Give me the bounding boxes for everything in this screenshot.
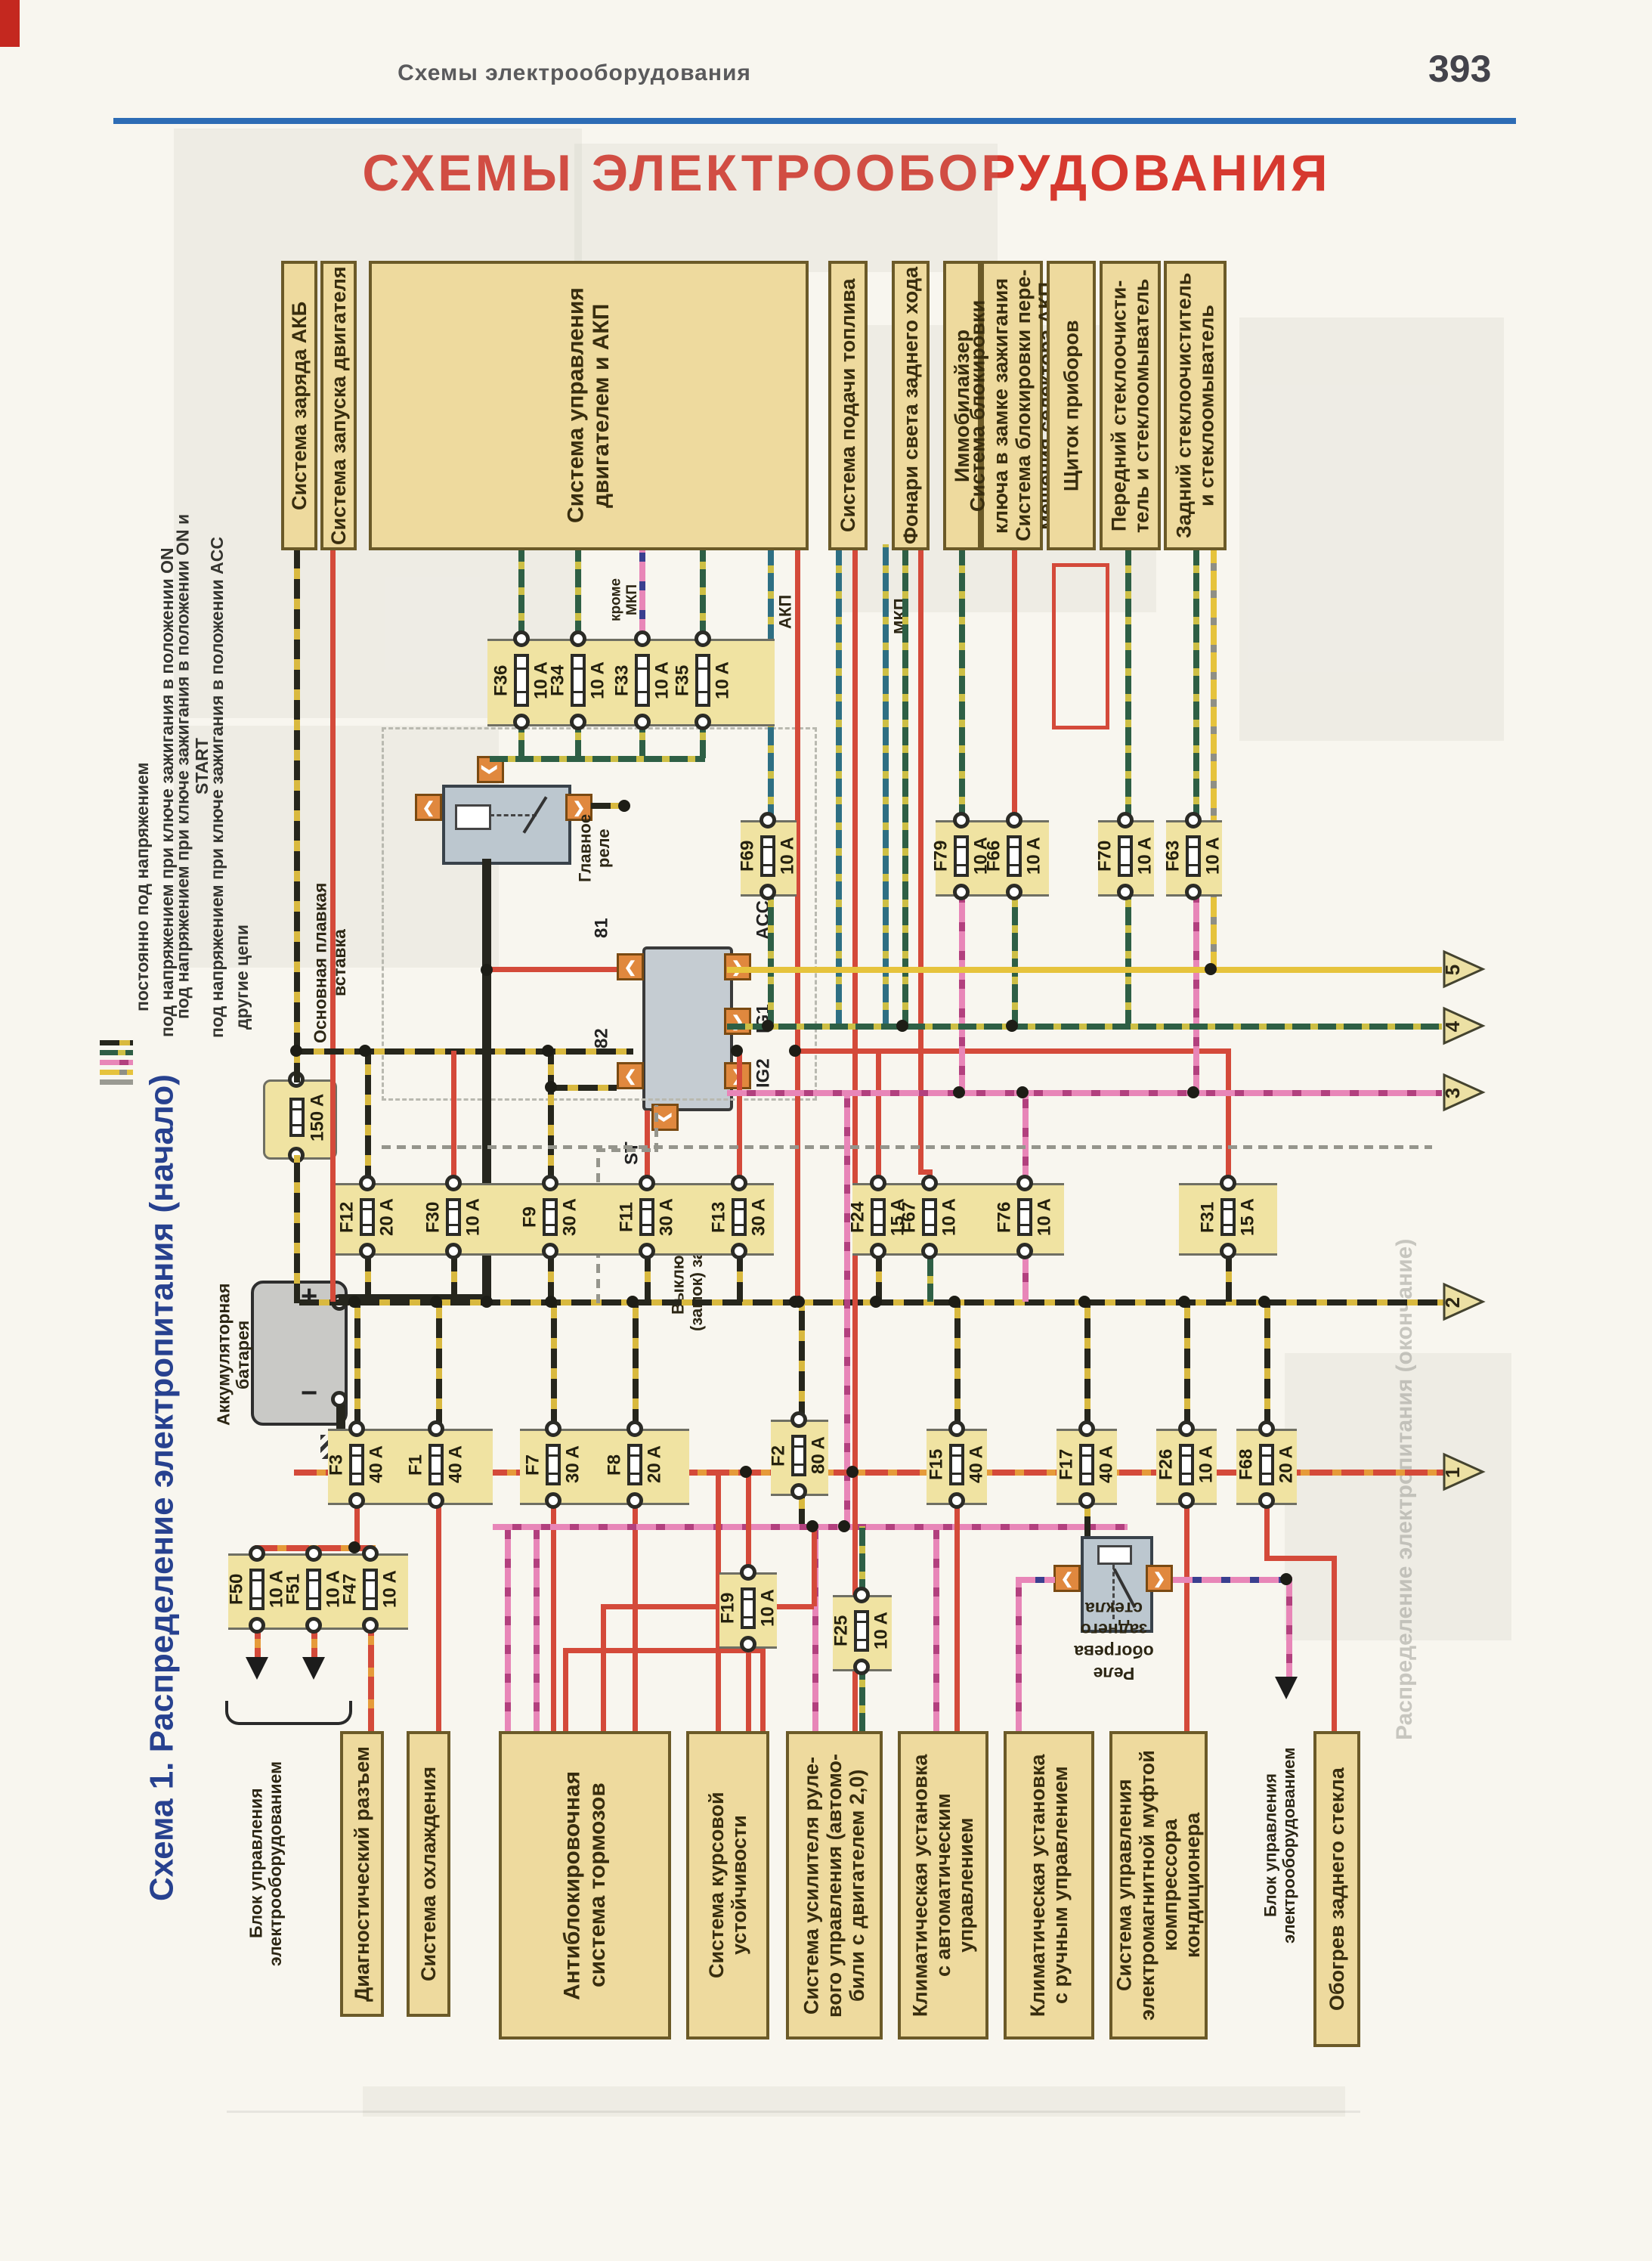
fuse-rating-F68: 20 A bbox=[1276, 1432, 1298, 1498]
wire bbox=[1184, 1302, 1190, 1429]
wire bbox=[859, 1667, 865, 1731]
fuse-id-F26: F26 bbox=[1156, 1432, 1177, 1498]
wire bbox=[1264, 1302, 1270, 1429]
wire bbox=[799, 1302, 805, 1421]
fuse-F7 bbox=[546, 1444, 561, 1485]
fuse-terminal bbox=[1178, 1492, 1195, 1509]
wire bbox=[548, 1051, 554, 1185]
wire bbox=[1173, 1577, 1288, 1583]
wire bbox=[1012, 892, 1018, 1028]
junction-dot bbox=[1178, 1296, 1190, 1308]
wire bbox=[368, 1625, 374, 1731]
fuse-terminal bbox=[1220, 1243, 1236, 1259]
fuse-F66 bbox=[1007, 835, 1022, 877]
junction-dot bbox=[846, 1466, 858, 1478]
fuse-F63 bbox=[1186, 835, 1201, 877]
fuse-F76 bbox=[1017, 1198, 1032, 1236]
fuse-F15 bbox=[949, 1444, 964, 1485]
fuse-F26 bbox=[1179, 1444, 1194, 1485]
fuse-rating-F33: 10 A bbox=[651, 642, 674, 719]
wire bbox=[933, 1526, 939, 1731]
legend-item-1: постоянно под напряжением bbox=[131, 724, 154, 1049]
wire bbox=[551, 1302, 557, 1429]
fuse-terminal bbox=[740, 1636, 756, 1652]
fuse-F25 bbox=[854, 1610, 869, 1652]
fuse-rating-F8: 20 A bbox=[644, 1432, 667, 1498]
fuse-terminal bbox=[1078, 1420, 1095, 1437]
junction-dot bbox=[430, 1296, 442, 1308]
fuse-id-F76: F76 bbox=[995, 1186, 1016, 1248]
fuse-id-F24: F24 bbox=[848, 1186, 869, 1248]
fuse-id-F63: F63 bbox=[1163, 823, 1184, 889]
fuse-rating-F7: 30 A bbox=[562, 1432, 585, 1498]
fuse-terminal bbox=[790, 1483, 807, 1500]
wire bbox=[601, 1604, 814, 1609]
junction-dot bbox=[1258, 1296, 1270, 1308]
fuse-F31 bbox=[1220, 1198, 1236, 1236]
fuse-terminal bbox=[1185, 812, 1202, 829]
fuse-terminal bbox=[731, 1243, 747, 1259]
wire bbox=[294, 544, 300, 1082]
fuse-id-F15: F15 bbox=[927, 1432, 948, 1498]
ignition-terminal-label-st: ST bbox=[621, 1135, 644, 1172]
fuse-id-F1: F1 bbox=[406, 1432, 427, 1498]
ignition-label: Выключатель (замок) зажигания bbox=[659, 1143, 716, 1370]
fuse-id-F68: F68 bbox=[1236, 1432, 1258, 1498]
fuse-terminal bbox=[759, 812, 776, 829]
fuse-id-F70: F70 bbox=[1095, 823, 1116, 889]
fuse-F17 bbox=[1079, 1444, 1094, 1485]
akp-label: АКП bbox=[775, 584, 797, 640]
wire bbox=[795, 544, 800, 1302]
fuse-F50 bbox=[249, 1569, 265, 1610]
fuse-rating-F67: 10 A bbox=[939, 1186, 961, 1248]
defogger-relay-terminal-right: ❯ bbox=[1146, 1565, 1173, 1592]
bottom-box-9: Обогрев заднего стекла bbox=[1313, 1731, 1360, 2047]
battery-minus: − bbox=[301, 1377, 317, 1410]
fuse-terminal bbox=[731, 1175, 747, 1191]
bleed-patch bbox=[574, 144, 998, 272]
wire bbox=[876, 1051, 881, 1185]
junction-dot bbox=[1006, 1020, 1018, 1032]
wire bbox=[436, 1302, 442, 1429]
fuse-id-F30: F30 bbox=[423, 1186, 444, 1248]
fuse-terminal bbox=[1016, 1175, 1033, 1191]
fuse-F11 bbox=[639, 1198, 654, 1236]
wire bbox=[768, 892, 774, 1028]
fuse-terminal bbox=[634, 630, 651, 647]
fuse-150A bbox=[289, 1098, 305, 1137]
fuse-terminal bbox=[695, 714, 711, 730]
fuse-F69 bbox=[760, 835, 775, 877]
ecu-label-left: Блок управления электрооборудованием bbox=[242, 1739, 290, 1988]
fuse-F19 bbox=[741, 1587, 756, 1629]
wire bbox=[563, 1648, 568, 1731]
fuse-F13 bbox=[732, 1198, 747, 1236]
bottom-box-1: Диагностический разъем bbox=[340, 1731, 384, 2017]
fuse-id-F67: F67 bbox=[899, 1186, 920, 1248]
junction-dot bbox=[870, 1296, 882, 1308]
wire bbox=[959, 544, 965, 822]
wire bbox=[490, 756, 705, 762]
fuse-rating-F31: 15 A bbox=[1237, 1186, 1260, 1248]
fuse-terminal bbox=[428, 1492, 444, 1509]
wire bbox=[365, 1051, 371, 1185]
wire bbox=[1084, 1302, 1091, 1429]
fuse-rating-F63: 10 A bbox=[1202, 823, 1225, 889]
defogger-relay-label: Реле обогрева заднего стекла bbox=[1055, 1634, 1173, 1684]
junction-dot bbox=[1078, 1296, 1091, 1308]
legend-item-4: под напряжением при ключе зажигания в по… bbox=[206, 526, 229, 1049]
junction-dot bbox=[290, 1045, 302, 1057]
bottom-box-8: Система управления электромагнитной муфт… bbox=[1109, 1731, 1208, 2040]
fuse-F1 bbox=[428, 1444, 444, 1485]
top-box-10: Задний стеклоочиститель и стеклоомывател… bbox=[1164, 261, 1227, 550]
junction-dot bbox=[359, 1045, 371, 1057]
wire bbox=[1264, 1556, 1337, 1561]
legend-swatch-4 bbox=[100, 1070, 133, 1075]
fuse-F51 bbox=[306, 1569, 321, 1610]
fuse-id-F17: F17 bbox=[1056, 1432, 1078, 1498]
junction-dot bbox=[1280, 1573, 1292, 1585]
wire bbox=[601, 1604, 606, 1731]
wire bbox=[1016, 1581, 1022, 1731]
wire bbox=[1012, 544, 1017, 822]
scheme-title: Схема 1. Распределение электропитания (н… bbox=[139, 1064, 184, 1911]
wire bbox=[505, 1526, 511, 1731]
junction-dot bbox=[1016, 1086, 1029, 1098]
wire bbox=[1226, 1051, 1231, 1185]
bottom-box-2: Система охлаждения bbox=[407, 1731, 450, 2017]
junction-dot bbox=[618, 800, 630, 812]
fuse-terminal bbox=[695, 630, 711, 647]
wire bbox=[518, 544, 524, 639]
wire bbox=[534, 1526, 540, 1731]
legend-item-5: другие цепи bbox=[231, 906, 254, 1049]
wire bbox=[1286, 1577, 1292, 1683]
bleed-watermark: Распределение электропитания (окончание) bbox=[1387, 960, 1422, 2018]
wiring-diagram: Схема 1. Распределение электропитания (н… bbox=[0, 0, 1652, 2261]
fuse-F30 bbox=[446, 1198, 461, 1236]
wire bbox=[1211, 544, 1217, 971]
fuse-terminal bbox=[542, 1243, 558, 1259]
connector-triangle-5: 5 bbox=[1442, 949, 1486, 993]
fuse-F35 bbox=[695, 654, 710, 707]
junction-dot bbox=[793, 1296, 805, 1308]
fuse-rating-F76: 10 A bbox=[1034, 1186, 1056, 1248]
wire bbox=[852, 544, 858, 1474]
fuse-terminal bbox=[1078, 1492, 1095, 1509]
top-box-4: Система подачи топлива bbox=[828, 261, 868, 550]
harness-outline bbox=[382, 727, 817, 1101]
svg-text:5: 5 bbox=[1442, 965, 1464, 975]
junction-dot bbox=[481, 964, 493, 976]
fuse-terminal bbox=[790, 1411, 807, 1428]
wire bbox=[575, 544, 581, 639]
bottom-box-5: Система усилителя руле- вого управления … bbox=[786, 1731, 883, 2040]
wire bbox=[563, 1648, 766, 1653]
connector-triangle-1: 1 bbox=[1442, 1452, 1486, 1495]
arrow-down-icon bbox=[246, 1657, 268, 1680]
wire bbox=[959, 892, 965, 1095]
fuse-terminal bbox=[1178, 1420, 1195, 1437]
junction-dot bbox=[481, 1296, 493, 1308]
wire bbox=[633, 1501, 638, 1731]
fuse-terminal bbox=[853, 1587, 870, 1603]
fuse-terminal bbox=[445, 1175, 462, 1191]
fuse-terminal bbox=[626, 1492, 643, 1509]
top-box-7: Система блокировки ключа в замке зажиган… bbox=[981, 261, 1043, 550]
defogger-relay-terminal-left: ❮ bbox=[1053, 1565, 1081, 1592]
fuse-F79 bbox=[954, 835, 969, 877]
fuse-id-F69: F69 bbox=[738, 823, 759, 889]
wire bbox=[484, 967, 617, 972]
wire bbox=[1125, 892, 1131, 1028]
fuse-terminal bbox=[1016, 1243, 1033, 1259]
wire bbox=[1022, 1092, 1029, 1185]
junction-dot bbox=[545, 1081, 557, 1093]
fuse-terminal bbox=[921, 1175, 938, 1191]
arrow-down-icon bbox=[1275, 1677, 1298, 1699]
junction-dot bbox=[542, 1045, 554, 1057]
fuse-rating-F9: 30 A bbox=[559, 1186, 582, 1248]
fuse-id-F2: F2 bbox=[769, 1423, 790, 1488]
fuse-rating-F1: 40 A bbox=[445, 1432, 468, 1498]
ecu-label-right: Блок управления электрооборудованием bbox=[1256, 1721, 1304, 1970]
fuse-terminal bbox=[305, 1545, 322, 1562]
fuse-id-F66: F66 bbox=[984, 823, 1005, 889]
junction-dot bbox=[896, 1020, 908, 1032]
fuse-id-F35: F35 bbox=[673, 642, 694, 719]
fuse-terminal bbox=[348, 1420, 365, 1437]
connector-triangle-4: 4 bbox=[1442, 1006, 1486, 1049]
fuse-terminal bbox=[1185, 884, 1202, 900]
fuse-id-F9: F9 bbox=[520, 1186, 541, 1248]
junction-dot bbox=[545, 1296, 557, 1308]
fuse-terminal bbox=[948, 1420, 965, 1437]
fuse-id-F33: F33 bbox=[612, 642, 633, 719]
fuse-F24 bbox=[871, 1198, 886, 1236]
fuse-rating-F3: 40 A bbox=[366, 1432, 388, 1498]
top-box-3: Система управления двигателем и АКП bbox=[369, 261, 809, 550]
svg-text:3: 3 bbox=[1442, 1088, 1464, 1098]
wire bbox=[1264, 1501, 1270, 1561]
fuse-terminal bbox=[639, 1243, 655, 1259]
wire bbox=[354, 1302, 360, 1429]
bottom-box-7: Климатическая установка с ручным управле… bbox=[1004, 1731, 1094, 2040]
wire bbox=[727, 1090, 1442, 1096]
connector-triangle-2: 2 bbox=[1442, 1282, 1486, 1325]
wire bbox=[1332, 1556, 1337, 1731]
fuse-terminal bbox=[359, 1243, 376, 1259]
fuse-terminal bbox=[740, 1564, 756, 1581]
fuse-F34 bbox=[571, 654, 586, 707]
fuse-terminal bbox=[634, 714, 651, 730]
junction-dot bbox=[348, 1541, 360, 1553]
fuse-id-F50: F50 bbox=[227, 1556, 248, 1622]
wire bbox=[727, 967, 1442, 973]
fuse-rating-F30: 10 A bbox=[462, 1186, 485, 1248]
top-box-8: Щиток приборов bbox=[1047, 261, 1096, 550]
wire bbox=[760, 1648, 766, 1731]
wire bbox=[1125, 544, 1131, 822]
legend-swatch-5 bbox=[100, 1079, 133, 1085]
fuse-F47 bbox=[363, 1569, 378, 1610]
fuse-terminal bbox=[428, 1420, 444, 1437]
wire bbox=[836, 544, 842, 1028]
fuse-rating-F19: 10 A bbox=[757, 1575, 780, 1641]
fuse-terminal bbox=[359, 1175, 376, 1191]
fuse-F36 bbox=[514, 654, 529, 707]
junction-dot bbox=[948, 1296, 961, 1308]
fuse-id-F12: F12 bbox=[337, 1186, 358, 1248]
junction-dot bbox=[1187, 1086, 1199, 1098]
fuse-rating-F70: 10 A bbox=[1134, 823, 1157, 889]
fuse-id-F3: F3 bbox=[326, 1432, 348, 1498]
wire bbox=[294, 1155, 300, 1303]
fuse-terminal bbox=[445, 1243, 462, 1259]
wire bbox=[551, 1501, 556, 1731]
fuse-terminal bbox=[545, 1420, 561, 1437]
fuse-terminal bbox=[1117, 812, 1134, 829]
fuse-id-F31: F31 bbox=[1198, 1186, 1219, 1248]
manual-page: Схемы электрооборудования 393 СХЕМЫ ЭЛЕК… bbox=[0, 0, 1652, 2261]
fuse-F12 bbox=[360, 1198, 375, 1236]
krome-mkp-label: кроме МКП bbox=[614, 561, 635, 638]
battery-label: Аккумуляторная батарея bbox=[212, 1264, 255, 1445]
wire bbox=[746, 1472, 751, 1575]
wire bbox=[954, 1302, 961, 1429]
wire bbox=[1193, 892, 1199, 1095]
fuse-terminal bbox=[1258, 1420, 1275, 1437]
fuse-terminal bbox=[545, 1492, 561, 1509]
fuse-terminal bbox=[362, 1545, 379, 1562]
fuse-F2 bbox=[791, 1435, 806, 1476]
fuse-rating-F34: 10 A bbox=[587, 642, 610, 719]
junction-dot bbox=[806, 1520, 818, 1532]
fuse-rating-F11: 30 A bbox=[656, 1186, 679, 1248]
wire bbox=[451, 1051, 456, 1185]
fuse-F68 bbox=[1259, 1444, 1274, 1485]
svg-text:1: 1 bbox=[1442, 1467, 1464, 1478]
fuse-terminal bbox=[626, 1420, 643, 1437]
fuse-F8 bbox=[627, 1444, 642, 1485]
junction-dot bbox=[953, 1086, 965, 1098]
fuse-F9 bbox=[543, 1198, 558, 1236]
wire bbox=[633, 1302, 639, 1429]
fuse-terminal bbox=[542, 1175, 558, 1191]
wire bbox=[954, 1501, 960, 1731]
fuse-id-F79: F79 bbox=[931, 823, 952, 889]
fuse-terminal bbox=[1006, 812, 1022, 829]
fuse-terminal bbox=[249, 1545, 265, 1562]
bottom-box-6: Климатическая установка с автоматическим… bbox=[898, 1731, 988, 2040]
fuse-rating-F66: 10 A bbox=[1023, 823, 1046, 889]
junction-dot bbox=[626, 1296, 639, 1308]
fuse-id-F25: F25 bbox=[831, 1598, 852, 1664]
wire bbox=[918, 544, 923, 1172]
fuse-rating-F47: 10 A bbox=[379, 1556, 402, 1622]
wire bbox=[436, 1501, 441, 1731]
arrow-down-icon bbox=[302, 1657, 325, 1680]
junction-dot bbox=[789, 1045, 801, 1057]
legend-swatch-1 bbox=[100, 1040, 133, 1045]
fuse-terminal bbox=[870, 1243, 886, 1259]
fuse-terminal bbox=[1220, 1175, 1236, 1191]
fuse-F3 bbox=[349, 1444, 364, 1485]
junction-dot bbox=[1205, 963, 1217, 975]
wire bbox=[727, 1024, 1442, 1030]
fuse-rating-F17: 40 A bbox=[1096, 1432, 1118, 1498]
wire bbox=[746, 1644, 751, 1731]
junction-dot bbox=[348, 1296, 360, 1308]
fuse-id-F36: F36 bbox=[491, 642, 512, 719]
fuse-id-F13: F13 bbox=[709, 1186, 730, 1248]
fuse-rating-F15: 40 A bbox=[966, 1432, 988, 1498]
fuse-F33 bbox=[635, 654, 650, 707]
fuse-terminal bbox=[759, 884, 776, 900]
bleed-patch bbox=[1239, 317, 1504, 741]
fuse-F67 bbox=[922, 1198, 937, 1236]
wire bbox=[382, 1145, 1432, 1149]
legend-swatch-2 bbox=[100, 1050, 133, 1055]
fuse-id-F11: F11 bbox=[617, 1186, 638, 1248]
instrument-red-outline bbox=[1052, 563, 1109, 729]
fuse-terminal bbox=[1006, 884, 1022, 900]
fuse-terminal bbox=[249, 1617, 265, 1634]
fuse-terminal bbox=[348, 1492, 365, 1509]
legend-item-3: под напряжением при ключе зажигания в по… bbox=[181, 484, 204, 1049]
wire bbox=[902, 544, 908, 1028]
junction-dot bbox=[762, 1020, 774, 1032]
fuse-terminal bbox=[948, 1492, 965, 1509]
bleed-line bbox=[227, 2111, 1360, 2113]
legend-swatch-3 bbox=[100, 1060, 133, 1065]
wire bbox=[330, 544, 336, 1302]
fuse-rating-F13: 30 A bbox=[748, 1186, 771, 1248]
fuse-id-F34: F34 bbox=[548, 642, 569, 719]
top-box-5: Фонари света заднего хода bbox=[892, 261, 930, 550]
brace-icon bbox=[225, 1701, 352, 1725]
fuse-terminal bbox=[513, 714, 530, 730]
wire bbox=[812, 1526, 817, 1606]
fuse-id-F8: F8 bbox=[605, 1432, 626, 1498]
fuse-terminal bbox=[1117, 884, 1134, 900]
wire bbox=[737, 1051, 742, 1185]
fuse-terminal bbox=[870, 1175, 886, 1191]
wire bbox=[700, 544, 706, 639]
wire bbox=[1184, 1501, 1190, 1731]
top-box-2: Система запуска двигателя bbox=[320, 261, 357, 550]
wire bbox=[299, 1299, 1468, 1305]
fuse-terminal bbox=[921, 1243, 938, 1259]
junction-dot bbox=[731, 1045, 743, 1057]
fuse-terminal bbox=[639, 1175, 655, 1191]
fuse-rating-F2: 80 A bbox=[808, 1423, 831, 1488]
fuse-terminal bbox=[305, 1617, 322, 1634]
wire bbox=[883, 544, 889, 1028]
fuse-terminal bbox=[853, 1659, 870, 1675]
fuse-terminal bbox=[362, 1617, 379, 1634]
fuse-id-F7: F7 bbox=[523, 1432, 544, 1498]
junction-dot bbox=[740, 1466, 752, 1478]
junction-dot bbox=[838, 1520, 850, 1532]
top-box-1: Система заряда АКБ bbox=[281, 261, 317, 550]
fuse-terminal bbox=[953, 884, 970, 900]
svg-text:4: 4 bbox=[1442, 1021, 1464, 1032]
fuse-terminal bbox=[953, 812, 970, 829]
fuse-id-F51: F51 bbox=[283, 1556, 305, 1622]
